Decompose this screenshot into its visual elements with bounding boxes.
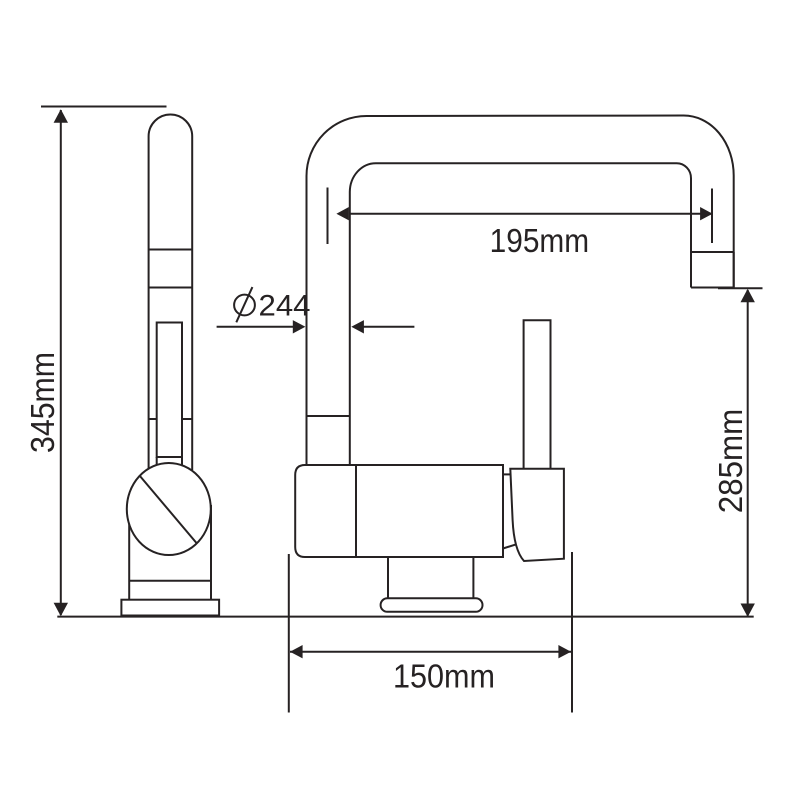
svg-text:244: 244 xyxy=(259,290,311,323)
svg-text:195mm: 195mm xyxy=(490,222,590,259)
svg-text:285mm: 285mm xyxy=(712,409,749,514)
svg-text:150mm: 150mm xyxy=(393,658,495,695)
svg-text:345mm: 345mm xyxy=(24,352,61,453)
